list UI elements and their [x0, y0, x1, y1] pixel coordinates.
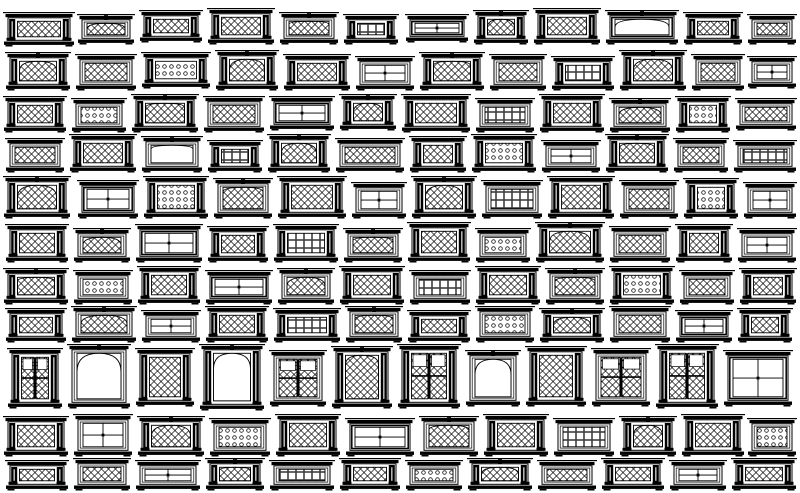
window-block-r11-c1 [5, 460, 69, 491]
window-block-r2-c12 [747, 56, 797, 89]
window-block-r1-c3 [139, 10, 203, 43]
window-block-r2-c2 [75, 54, 137, 91]
window-block-r10-c8 [483, 414, 549, 457]
window-block-r1-c8 [473, 10, 529, 45]
window-block-r8-c4 [205, 306, 269, 343]
window-block-r10-c2 [73, 414, 133, 457]
window-block-r4-c9 [541, 140, 601, 173]
window-block-r5-c7 [411, 176, 477, 219]
window-block-r7-c12 [739, 268, 797, 305]
window-block-r5-c4 [213, 178, 273, 219]
window-block-r9-c5 [269, 350, 327, 407]
window-block-r10-c4 [209, 418, 271, 457]
window-block-r1-c6 [343, 14, 399, 45]
window-block-r4-c8 [471, 134, 537, 173]
window-block-r1-c12 [747, 14, 797, 45]
window-block-r5-c9 [547, 176, 615, 219]
window-block-r1-c1 [3, 12, 75, 47]
window-block-r7-c8 [475, 266, 541, 305]
window-block-r2-c9 [551, 56, 615, 91]
window-block-r5-c5 [277, 176, 347, 219]
window-block-r3-c7 [401, 94, 471, 133]
window-block-r4-c5 [267, 134, 331, 173]
window-block-r4-c12 [733, 140, 797, 173]
window-block-r9-c11 [655, 344, 719, 409]
window-block-r1-c5 [279, 12, 339, 45]
window-block-r11-c7 [405, 460, 463, 491]
window-block-r6-c11 [675, 224, 733, 263]
window-block-r9-c10 [591, 348, 651, 407]
window-block-r2-c3 [141, 52, 211, 89]
window-block-r4-c10 [605, 134, 669, 173]
window-block-r8-c10 [609, 306, 671, 343]
window-block-r10-c6 [345, 418, 415, 457]
window-block-r4-c4 [207, 140, 263, 173]
window-block-r9-c6 [331, 346, 393, 409]
window-block-r3-c9 [539, 94, 605, 133]
window-block-r10-c12 [747, 418, 797, 457]
window-block-r7-c7 [409, 270, 471, 305]
window-block-r11-c9 [537, 460, 597, 491]
window-block-r3-c12 [735, 98, 797, 131]
window-block-r2-c11 [691, 54, 745, 91]
window-block-r5-c3 [143, 176, 209, 219]
window-block-r6-c8 [475, 228, 531, 263]
window-block-r7-c11 [679, 270, 735, 305]
cad-sheet-canvas [0, 0, 800, 493]
window-block-r9-c8 [465, 350, 521, 407]
window-block-r7-c6 [339, 266, 405, 305]
cad-blocks-sheet [0, 0, 800, 493]
window-block-r3-c10 [609, 98, 671, 133]
window-block-r8-c6 [345, 306, 403, 343]
window-block-r3-c4 [203, 96, 265, 133]
window-block-r4-c6 [335, 138, 405, 173]
window-block-r6-c7 [407, 222, 471, 263]
window-block-r1-c10 [605, 10, 679, 45]
window-block-r8-c3 [141, 310, 201, 343]
window-block-r8-c8 [475, 306, 535, 343]
window-block-r6-c4 [207, 226, 269, 263]
window-block-r6-c1 [5, 224, 69, 263]
window-block-r8-c2 [71, 306, 137, 343]
window-block-r6-c9 [535, 222, 605, 263]
window-block-r2-c4 [215, 50, 279, 91]
window-block-r3-c11 [675, 96, 731, 133]
window-block-r11-c11 [669, 460, 727, 491]
window-block-r7-c10 [609, 266, 675, 305]
window-block-r10-c9 [553, 418, 615, 457]
window-block-r5-c8 [481, 180, 543, 219]
window-block-r4-c2 [69, 134, 137, 173]
window-block-r1-c4 [207, 8, 275, 45]
window-block-r10-c5 [275, 414, 341, 457]
window-block-r7-c3 [137, 266, 201, 305]
window-block-r8-c5 [273, 308, 341, 343]
window-block-r11-c8 [467, 458, 533, 491]
window-block-r11-c10 [601, 458, 665, 491]
window-block-r7-c9 [545, 268, 605, 305]
window-block-r7-c1 [3, 268, 69, 305]
window-block-r9-c9 [525, 346, 587, 407]
window-block-r11-c4 [205, 458, 265, 491]
window-block-r8-c12 [737, 308, 793, 343]
window-block-r3-c8 [475, 98, 535, 133]
window-block-r9-c12 [723, 350, 793, 407]
window-block-r2-c1 [5, 52, 71, 91]
window-block-r3-c6 [339, 94, 397, 131]
window-block-r5-c1 [3, 176, 71, 219]
window-block-r5-c10 [619, 180, 679, 219]
window-block-r4-c3 [141, 136, 203, 173]
window-block-r3-c5 [269, 96, 335, 131]
window-block-r7-c4 [205, 270, 273, 305]
window-block-r2-c10 [619, 50, 687, 91]
window-block-r10-c10 [619, 416, 677, 457]
window-block-r4-c1 [5, 138, 65, 173]
window-block-r5-c6 [351, 182, 407, 219]
window-block-r4-c7 [409, 136, 467, 173]
window-block-r2-c8 [489, 54, 547, 91]
window-block-r3-c3 [131, 94, 199, 133]
window-block-r6-c12 [737, 228, 797, 263]
window-block-r6-c2 [73, 228, 131, 263]
window-block-r8-c9 [539, 308, 605, 343]
window-block-r2-c5 [283, 54, 351, 91]
window-block-r7-c5 [277, 268, 335, 305]
window-block-r10-c11 [681, 414, 745, 457]
window-block-r7-c2 [73, 270, 133, 305]
window-block-r1-c11 [683, 12, 743, 45]
window-block-r11-c12 [731, 458, 797, 491]
window-block-r9-c3 [135, 348, 195, 407]
window-block-r1-c2 [77, 14, 135, 45]
window-block-r11-c2 [73, 458, 131, 491]
window-block-r6-c6 [343, 228, 403, 263]
window-block-r2-c6 [355, 56, 415, 91]
window-block-r5-c11 [683, 178, 739, 219]
window-block-r11-c3 [135, 460, 201, 491]
window-block-r9-c1 [7, 348, 63, 409]
window-block-r8-c1 [5, 308, 67, 343]
window-block-r10-c7 [419, 416, 479, 457]
window-block-r9-c2 [67, 344, 131, 409]
window-block-r6-c3 [135, 224, 203, 263]
window-block-r10-c1 [3, 416, 69, 457]
window-block-r6-c10 [609, 226, 671, 263]
window-block-r2-c7 [419, 52, 485, 91]
window-block-r3-c1 [3, 96, 67, 133]
window-block-r5-c2 [77, 180, 139, 219]
window-block-r1-c7 [405, 14, 469, 43]
window-block-r3-c2 [71, 98, 127, 133]
window-block-r5-c12 [743, 182, 797, 219]
window-block-r1-c9 [533, 8, 601, 45]
window-block-r11-c5 [269, 460, 335, 491]
window-block-r6-c5 [273, 224, 339, 263]
window-block-r4-c11 [673, 138, 729, 173]
window-block-r8-c11 [675, 310, 733, 343]
window-block-r9-c4 [199, 344, 265, 411]
window-block-r8-c7 [407, 310, 471, 343]
window-block-r11-c6 [339, 458, 401, 491]
window-block-r10-c3 [137, 416, 205, 457]
window-block-r9-c7 [397, 344, 461, 409]
